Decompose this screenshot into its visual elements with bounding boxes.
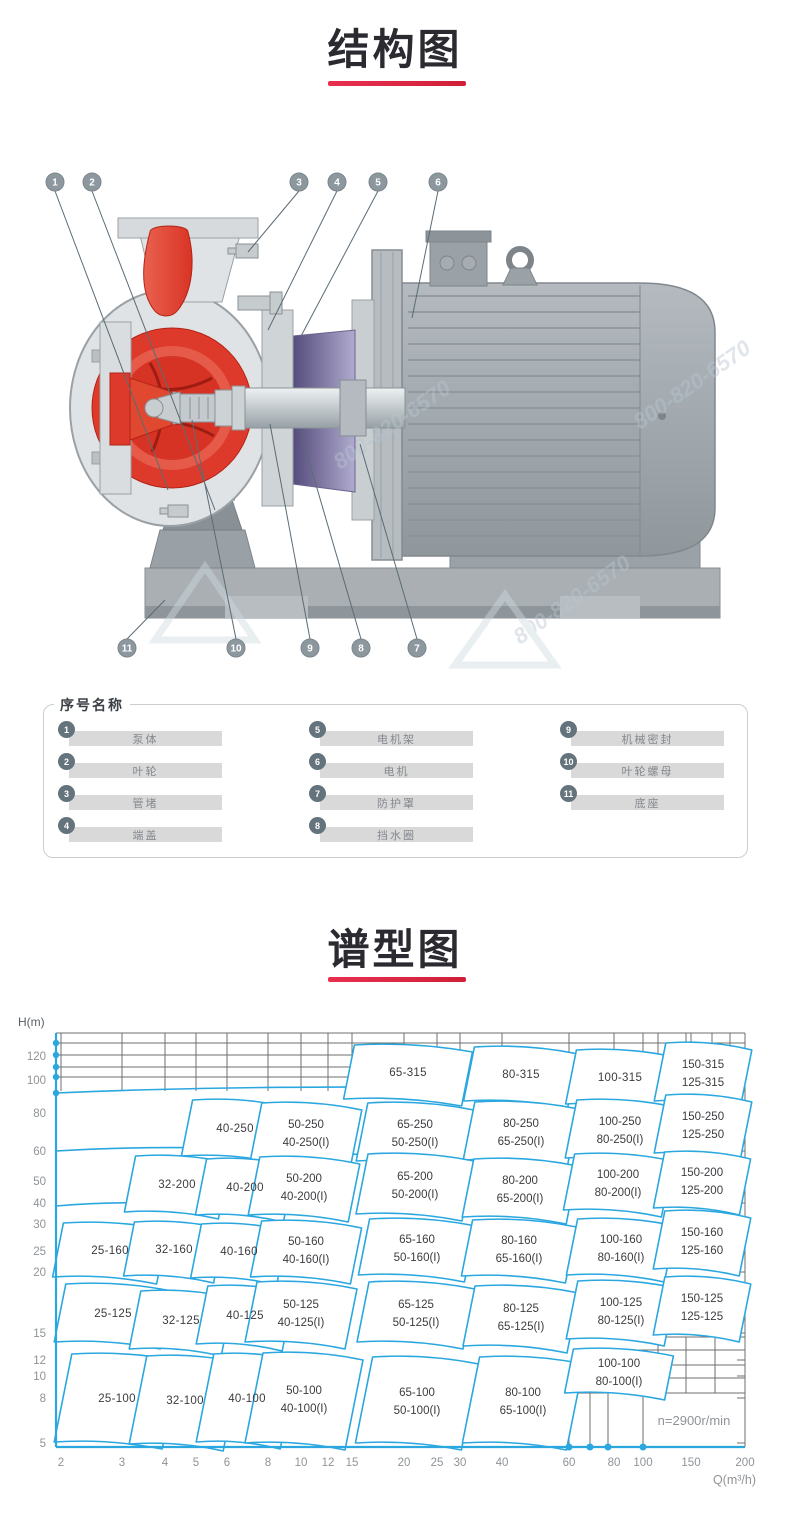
callout-number: 3	[296, 178, 302, 189]
x-tick-label: 4	[162, 1457, 169, 1469]
x-tick-label: 15	[346, 1457, 359, 1469]
region-label: 40-100(I)	[281, 1403, 328, 1415]
region-label: 80-100(I)	[596, 1376, 643, 1388]
y-tick-label: 8	[40, 1393, 46, 1405]
callout-number: 5	[375, 178, 381, 189]
pump-region	[462, 1158, 578, 1224]
y-tick-label: 80	[33, 1108, 46, 1120]
callout-number: 6	[435, 178, 441, 189]
legend-item-number-badge: 3	[58, 785, 75, 802]
region-label: 50-160(I)	[394, 1252, 441, 1264]
region-label: 80-200(I)	[595, 1187, 642, 1199]
y-tick-label: 60	[33, 1146, 46, 1158]
axis-dot	[53, 1090, 59, 1096]
region-label: 65-125(I)	[498, 1321, 545, 1333]
region-label: 80-200	[502, 1175, 538, 1187]
pump-region	[356, 1153, 474, 1221]
region-label: 65-250(I)	[498, 1136, 545, 1148]
region-label: 65-100(I)	[500, 1405, 547, 1417]
region-label: 40-250	[216, 1123, 254, 1135]
region-label: 65-250	[397, 1119, 433, 1131]
region-label: 25-125	[94, 1308, 132, 1320]
suction-passage	[110, 373, 130, 445]
pump-region	[355, 1356, 478, 1450]
legend-item-number-badge: 1	[58, 721, 75, 738]
region-label: 50-100(I)	[394, 1405, 441, 1417]
shaft-spline	[180, 394, 215, 422]
region-label: 25-160	[91, 1245, 129, 1257]
x-axis-title: Q(m³/h)	[713, 1473, 756, 1487]
pump-region	[463, 1101, 579, 1167]
legend-item: 电机6	[309, 753, 484, 779]
legend-item-number-badge: 2	[58, 753, 75, 770]
pump-region	[358, 1218, 475, 1282]
spectrum-title-text: 谱型图	[327, 926, 462, 973]
region-label: 32-160	[155, 1244, 193, 1256]
region-label: 40-125	[226, 1310, 264, 1322]
region-label: 100-250	[599, 1116, 641, 1128]
legend-item-label: 电机架	[320, 731, 473, 746]
callout-leader-line	[268, 191, 337, 330]
legend-title: 序号名称	[54, 695, 130, 715]
drain-plug	[168, 505, 188, 517]
region-label: 125-200	[681, 1185, 723, 1197]
axis-dot	[605, 1444, 612, 1451]
region-label: 50-200	[286, 1173, 322, 1185]
region-label: 50-250(I)	[392, 1137, 439, 1149]
spectrum-title-underline	[328, 977, 466, 982]
region-label: 40-200	[226, 1182, 264, 1194]
axis-dot	[53, 1052, 59, 1058]
region-label: 40-160	[220, 1246, 258, 1258]
legend-item-label: 管堵	[69, 795, 222, 810]
axis-dot	[566, 1444, 573, 1451]
region-label: 32-200	[158, 1179, 196, 1191]
region-label: 65-315	[389, 1067, 427, 1079]
legend-item-label: 底座	[571, 795, 724, 810]
pump-region	[654, 1094, 752, 1160]
legend-item-number-badge: 11	[560, 785, 577, 802]
y-tick-label: 30	[33, 1219, 46, 1231]
legend-item: 机械密封9	[560, 721, 735, 747]
pump-region	[461, 1219, 576, 1283]
page: 结构图	[0, 0, 790, 1520]
region-label: 25-100	[98, 1393, 136, 1405]
y-tick-label: 100	[27, 1075, 46, 1087]
shaft-coupling	[340, 380, 366, 436]
y-tick-label: 15	[33, 1328, 46, 1340]
region-label: 40-250(I)	[283, 1137, 330, 1149]
pump-region	[357, 1281, 475, 1349]
x-tick-label: 150	[681, 1457, 700, 1469]
region-label: 80-315	[502, 1069, 540, 1081]
region-label: 80-125	[503, 1303, 539, 1315]
pump-region	[653, 1276, 751, 1342]
region-label: 40-100	[228, 1393, 266, 1405]
region-label: 100-200	[597, 1169, 639, 1181]
legend-item-label: 挡水圈	[320, 827, 473, 842]
y-tick-label: 5	[40, 1438, 46, 1450]
speed-annotation: n=2900r/min	[658, 1413, 731, 1428]
x-tick-label: 12	[322, 1457, 335, 1469]
axis-dot	[53, 1074, 59, 1080]
region-label: 125-125	[681, 1311, 723, 1323]
region-label: 100-315	[598, 1072, 642, 1084]
x-tick-label: 3	[119, 1457, 125, 1469]
pump-selection-chart: 65-31580-315100-315150-315125-31540-2505…	[0, 1010, 790, 1510]
region-label: 65-200	[397, 1171, 433, 1183]
x-tick-label: 5	[193, 1457, 199, 1469]
region-label: 150-250	[682, 1111, 724, 1123]
region-label: 40-125(I)	[278, 1317, 325, 1329]
region-label: 150-160	[681, 1227, 723, 1239]
x-tick-label: 20	[398, 1457, 411, 1469]
x-tick-label: 25	[431, 1457, 444, 1469]
legend-item-label: 泵体	[69, 731, 222, 746]
callout-number: 9	[307, 644, 313, 655]
pump-region	[462, 1356, 583, 1450]
legend-item: 挡水圈8	[309, 817, 484, 843]
legend-item-label: 电机	[320, 763, 473, 778]
region-label: 100-125	[600, 1297, 642, 1309]
callout-number: 2	[89, 178, 95, 189]
region-label: 50-100	[286, 1385, 322, 1397]
y-tick-label: 50	[33, 1176, 46, 1188]
x-tick-label: 30	[454, 1457, 467, 1469]
legend-item: 端盖4	[58, 817, 233, 843]
legend-item-label: 端盖	[69, 827, 222, 842]
region-label: 125-160	[681, 1245, 723, 1257]
region-label: 50-125	[283, 1299, 319, 1311]
x-tick-label: 2	[58, 1457, 64, 1469]
pump-region	[250, 1220, 361, 1284]
legend-item: 叶轮2	[58, 753, 233, 779]
pipe-plug	[236, 244, 258, 258]
legend-item: 管堵3	[58, 785, 233, 811]
x-tick-label: 6	[224, 1457, 230, 1469]
region-label: 125-250	[682, 1129, 724, 1141]
region-label: 32-100	[166, 1395, 204, 1407]
region-label: 40-160(I)	[283, 1254, 330, 1266]
region-label: 65-100	[399, 1387, 435, 1399]
region-label: 100-100	[598, 1358, 640, 1370]
legend-item-number-badge: 10	[560, 753, 577, 770]
spectrum-section-title: 谱型图	[0, 916, 790, 977]
motor-body	[402, 283, 715, 556]
region-label: 65-160(I)	[496, 1253, 543, 1265]
x-tick-label: 200	[735, 1457, 754, 1469]
legend-item-label: 机械密封	[571, 731, 724, 746]
region-label: 50-200(I)	[392, 1189, 439, 1201]
y-axis-title: H(m)	[18, 1015, 45, 1029]
legend-item: 泵体1	[58, 721, 233, 747]
pump-region	[248, 1156, 360, 1222]
x-tick-label: 40	[496, 1457, 509, 1469]
legend-item-number-badge: 4	[58, 817, 75, 834]
legend-item-number-badge: 7	[309, 785, 326, 802]
region-label: 80-160(I)	[598, 1252, 645, 1264]
y-tick-label: 25	[33, 1246, 46, 1258]
axis-dot	[53, 1040, 59, 1046]
region-label: 150-315	[682, 1059, 724, 1071]
structure-title-underline	[328, 81, 466, 86]
region-label: 150-125	[681, 1293, 723, 1305]
callout-number: 1	[52, 178, 58, 189]
region-label: 80-250(I)	[597, 1134, 644, 1146]
region-label: 40-200(I)	[281, 1191, 328, 1203]
x-tick-label: 100	[633, 1457, 652, 1469]
pump-region	[463, 1285, 579, 1353]
legend-item: 底座11	[560, 785, 735, 811]
callout-number: 4	[334, 178, 340, 189]
pump-region	[565, 1348, 674, 1400]
legend-item-number-badge: 6	[309, 753, 326, 770]
x-tick-label: 80	[608, 1457, 621, 1469]
y-tick-label: 12	[33, 1355, 46, 1367]
legend-item: 电机架5	[309, 721, 484, 747]
region-label: 80-100	[505, 1387, 541, 1399]
legend-item-label: 叶轮螺母	[571, 763, 724, 778]
region-label: 80-125(I)	[598, 1315, 645, 1327]
pump-structure-diagram: 800-820-6570800-820-6570800-820-6570 123…	[0, 160, 790, 680]
model-regions: 65-31580-315100-315150-315125-31540-2505…	[53, 1042, 752, 1451]
region-label: 50-160	[288, 1236, 324, 1248]
legend-item: 叶轮螺母10	[560, 753, 735, 779]
region-label: 50-125(I)	[393, 1317, 440, 1329]
pump-region	[653, 1151, 750, 1215]
axis-dot	[53, 1064, 59, 1070]
legend-item-number-badge: 9	[560, 721, 577, 738]
callout-number: 7	[414, 644, 420, 655]
x-tick-label: 8	[265, 1457, 271, 1469]
x-tick-label: 10	[295, 1457, 308, 1469]
motor-terminal-box	[426, 231, 491, 286]
legend-item-label: 叶轮	[69, 763, 222, 778]
callout-number: 11	[122, 644, 133, 655]
axis-dot	[640, 1444, 647, 1451]
legend-item-number-badge: 8	[309, 817, 326, 834]
region-label: 50-250	[288, 1119, 324, 1131]
structure-section-title: 结构图	[0, 16, 790, 77]
region-label: 65-160	[399, 1234, 435, 1246]
region-label: 125-315	[682, 1077, 724, 1089]
region-label: 80-250	[503, 1118, 539, 1130]
y-tick-label: 40	[33, 1198, 46, 1210]
y-tick-label: 20	[33, 1267, 46, 1279]
x-tick-label: 60	[563, 1457, 576, 1469]
callout-number: 10	[230, 644, 242, 655]
lifting-eye	[503, 249, 537, 285]
region-label: 150-200	[681, 1167, 723, 1179]
region-label: 32-125	[162, 1315, 200, 1327]
region-label: 65-200(I)	[497, 1193, 544, 1205]
y-tick-label: 120	[27, 1051, 46, 1063]
pump-region	[653, 1210, 751, 1276]
structure-title-text: 结构图	[327, 26, 462, 73]
legend-item: 防护罩7	[309, 785, 484, 811]
y-tick-label: 10	[33, 1371, 46, 1383]
region-label: 80-160	[501, 1235, 537, 1247]
region-label: 65-125	[398, 1299, 434, 1311]
callout-number: 8	[358, 644, 364, 655]
region-label: 100-160	[600, 1234, 642, 1246]
legend-item-number-badge: 5	[309, 721, 326, 738]
legend-item-label: 防护罩	[320, 795, 473, 810]
axis-dot	[587, 1444, 594, 1451]
